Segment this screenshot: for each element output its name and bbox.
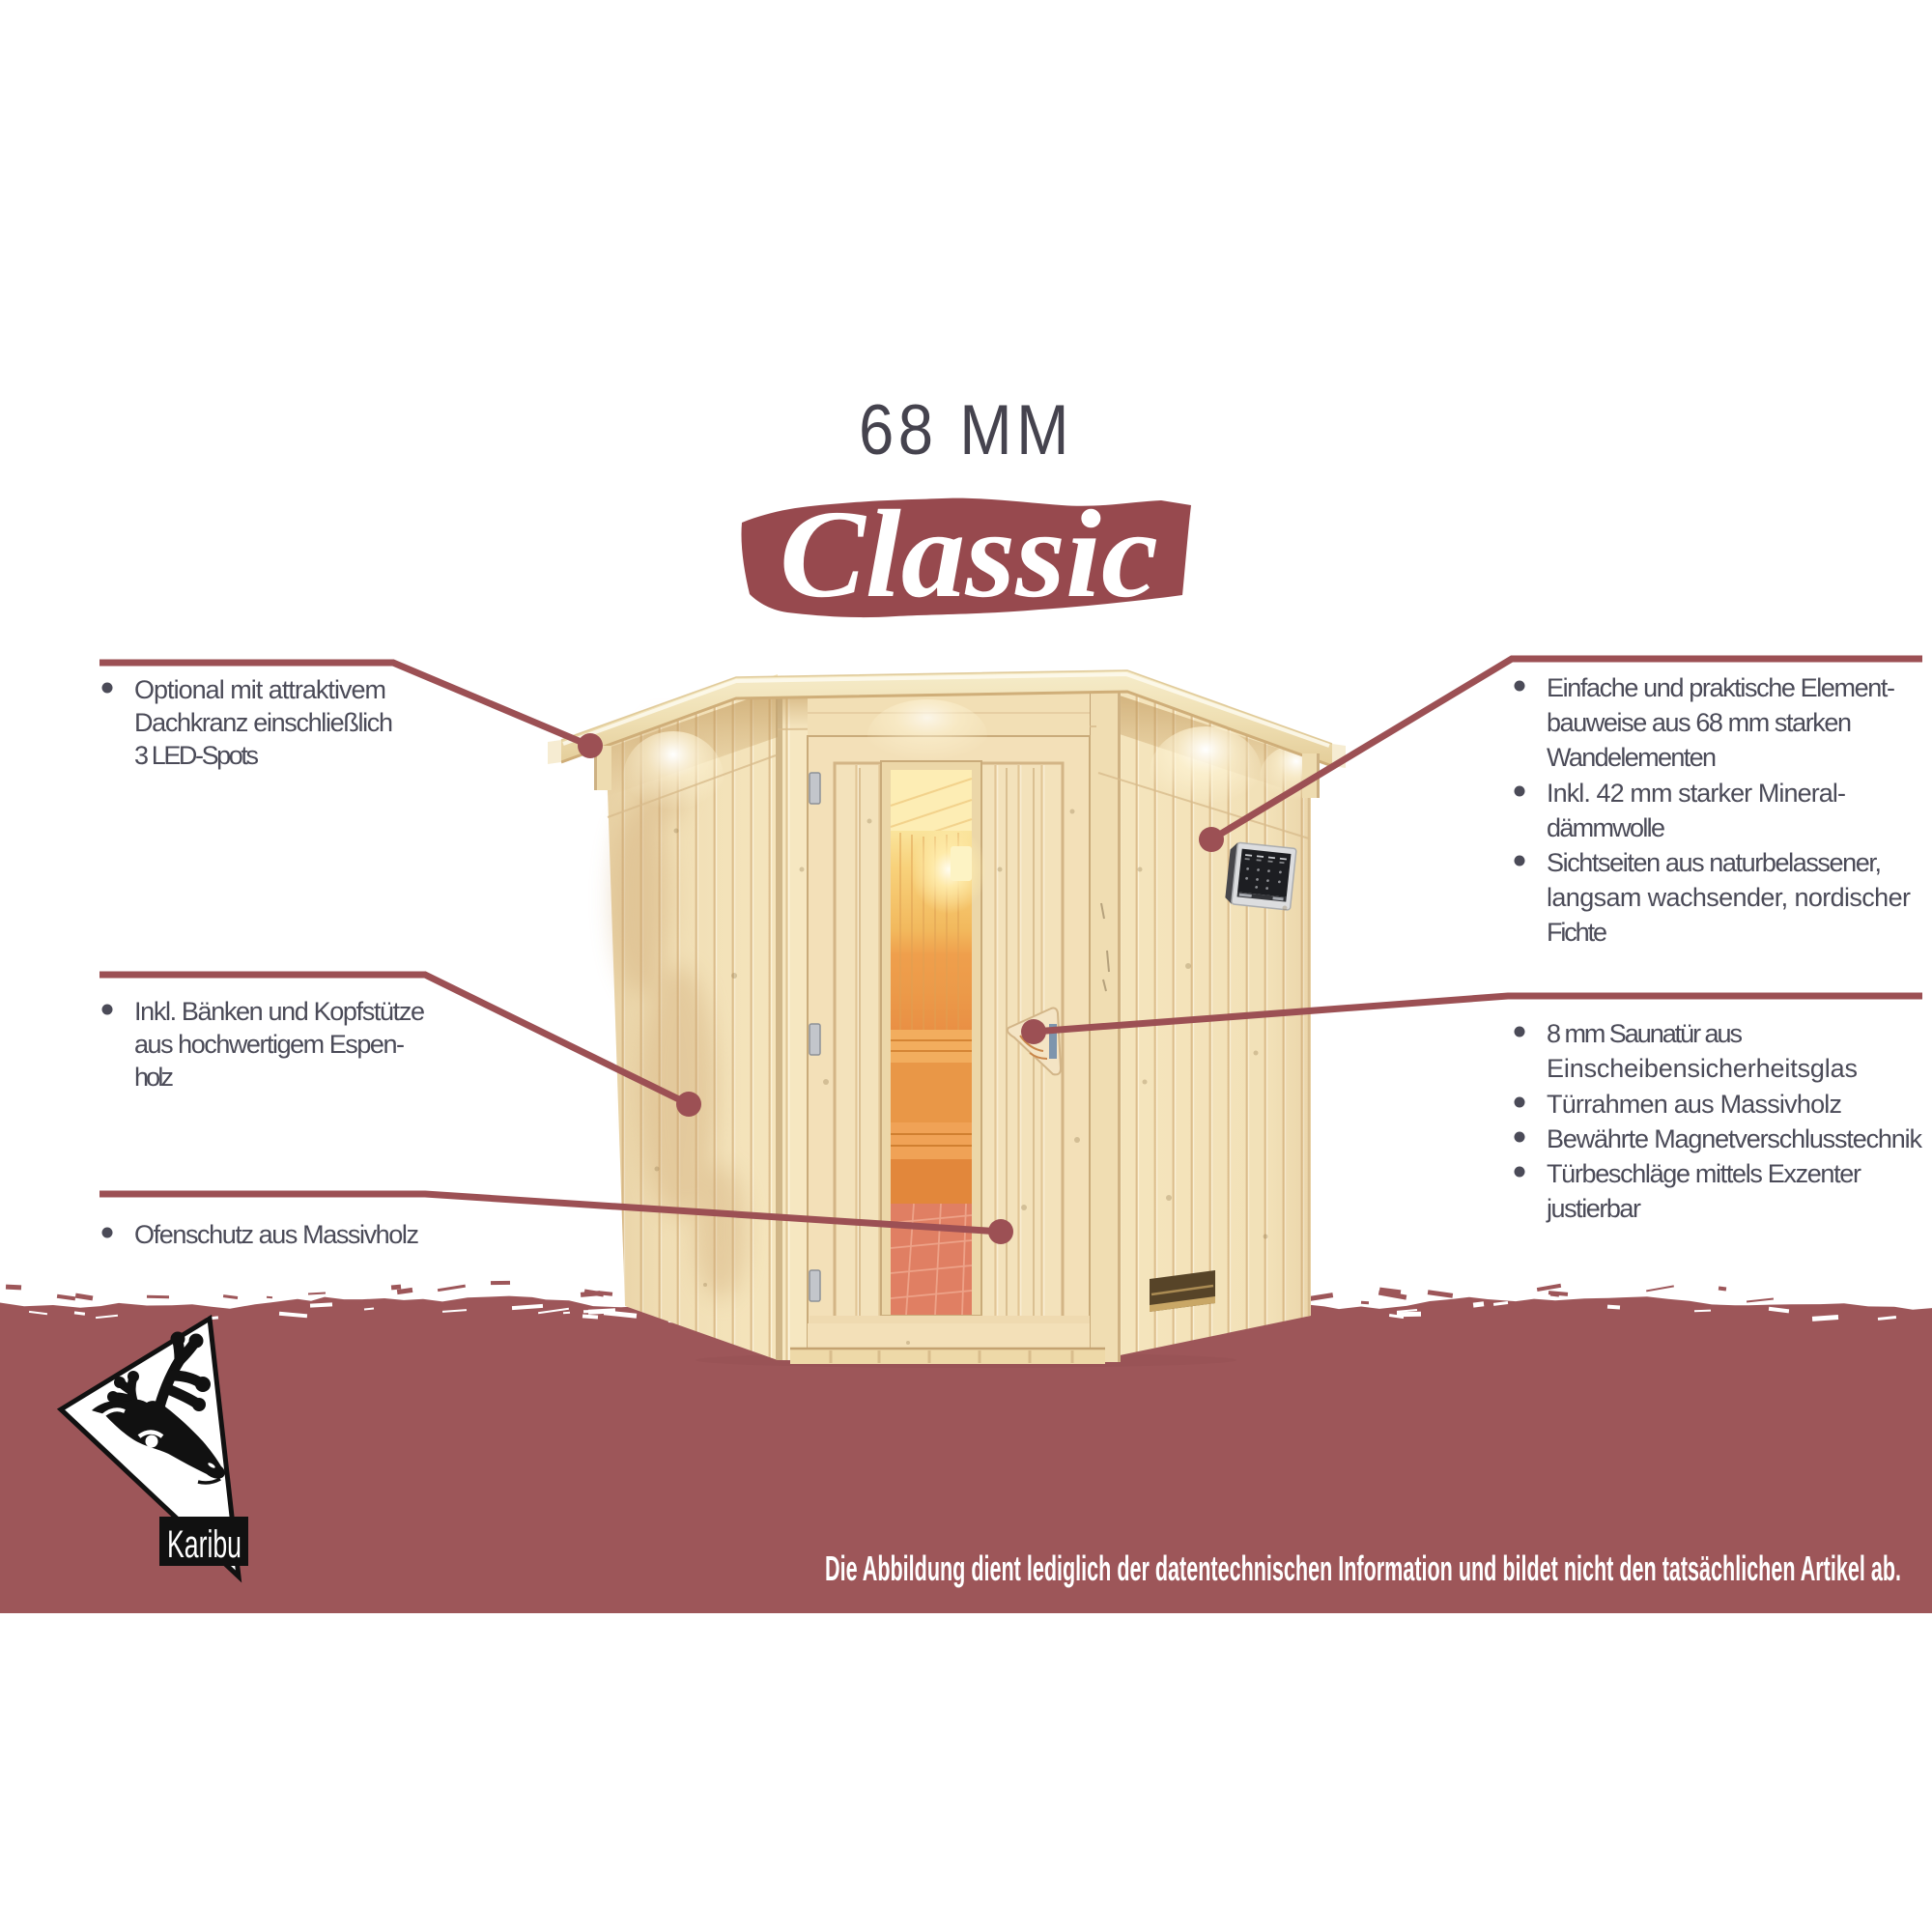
svg-text:Türbeschläge mittels Exzenter: Türbeschläge mittels Exzenter [1547,1159,1861,1188]
svg-text:bauweise aus 68 mm starken: bauweise aus 68 mm starken [1547,708,1852,737]
svg-text:Die Abbildung dient lediglich: Die Abbildung dient lediglich der datent… [825,1548,1901,1588]
svg-text:dämmwolle: dämmwolle [1547,813,1665,842]
svg-text:Inkl. Bänken und Kopfstütze: Inkl. Bänken und Kopfstütze [134,997,425,1026]
svg-text:Ofenschutz aus Massivholz: Ofenschutz aus Massivholz [134,1220,419,1249]
svg-text:Dachkranz einschließlich: Dachkranz einschließlich [134,708,393,737]
svg-text:Inkl. 42 mm starker Mineral-: Inkl. 42 mm starker Mineral- [1547,779,1846,808]
svg-text:Classic: Classic [780,485,1158,624]
svg-text:3 LED-Spots: 3 LED-Spots [134,741,259,770]
svg-text:Bewährte Magnetverschlusstechn: Bewährte Magnetverschlusstechnik [1547,1124,1923,1153]
svg-text:Karibu: Karibu [167,1523,241,1566]
svg-text:Sichtseiten aus naturbelassene: Sichtseiten aus naturbelassener, [1547,848,1882,877]
svg-text:68 MM: 68 MM [859,391,1073,469]
svg-text:aus hochwertigem Espen-: aus hochwertigem Espen- [134,1030,405,1059]
svg-text:justierbar: justierbar [1546,1194,1641,1223]
svg-text:Einfache und praktische Elemen: Einfache und praktische Element- [1547,673,1895,702]
svg-text:Fichte: Fichte [1547,918,1607,947]
svg-text:Wandelementen: Wandelementen [1547,743,1717,772]
svg-text:langsam wachsender, nordischer: langsam wachsender, nordischer [1547,883,1911,912]
svg-text:Einscheibensicherheitsglas: Einscheibensicherheitsglas [1547,1054,1858,1083]
svg-text:holz: holz [134,1063,174,1092]
svg-text:Optional mit attraktivem: Optional mit attraktivem [134,675,386,704]
svg-text:Türrahmen aus Massivholz: Türrahmen aus Massivholz [1547,1090,1842,1119]
svg-text:8 mm Saunatür aus: 8 mm Saunatür aus [1547,1019,1743,1048]
